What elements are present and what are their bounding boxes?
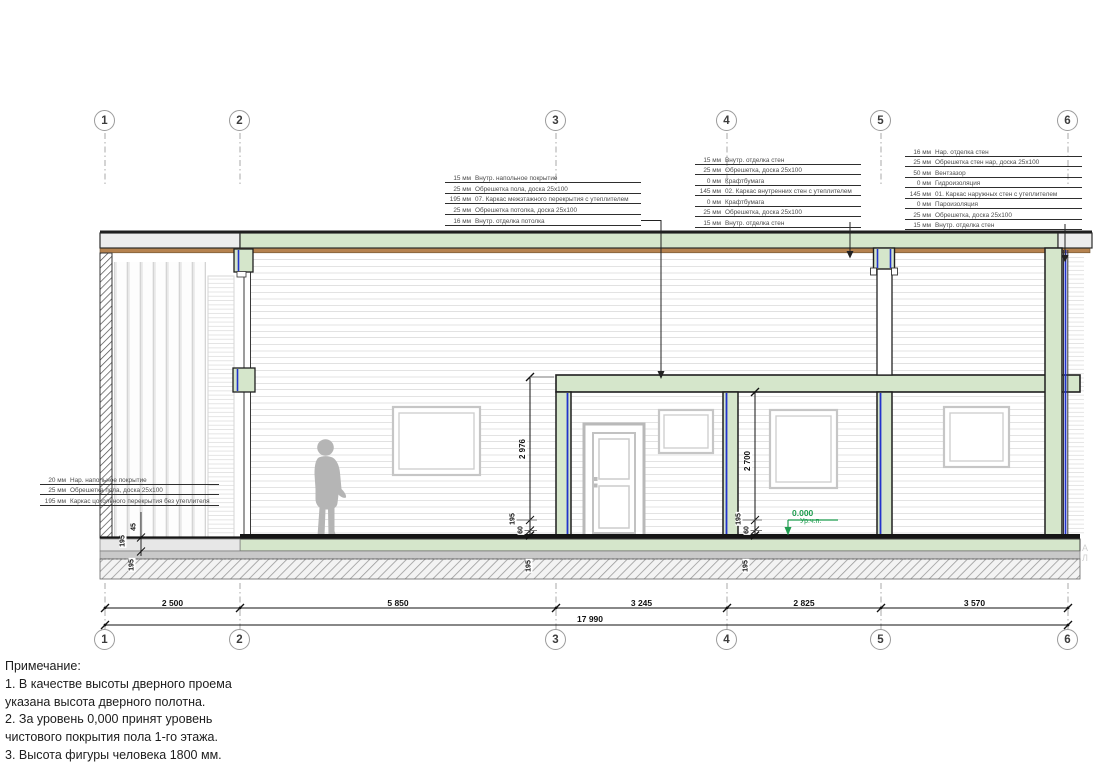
callout-row: 195 ммКаркас цокольного перекрытия без у…	[40, 495, 219, 506]
grid-bubble-top-3: 3	[545, 110, 566, 131]
layer-thickness: 145 мм	[905, 191, 935, 198]
dim-small: 60	[744, 525, 751, 535]
level-caption: Ур.ч.п.	[792, 518, 821, 526]
layer-thickness: 25 мм	[445, 207, 475, 214]
callout-row: 25 ммОбрешетка стен нар, доска 25x100	[905, 157, 1082, 168]
layer-description: 01. Каркас наружных стен с утеплителем	[935, 191, 1082, 198]
dim-segment-label: 2 825	[793, 598, 814, 608]
callout-row: 195 мм07. Каркас межэтажного перекрытия …	[445, 194, 641, 205]
callout-row: 25 ммОбрешетка пола, доска 25x100	[40, 485, 219, 496]
grid-bubble-bottom-2: 2	[229, 629, 250, 650]
callout-row: 0 ммКрафтбумага	[695, 196, 861, 207]
grid-bubble-top-6: 6	[1057, 110, 1078, 131]
dim-small: 195	[510, 512, 517, 526]
layer-description: Внутр. отделка стен	[725, 157, 861, 164]
layer-thickness: 15 мм	[905, 222, 935, 229]
layer-thickness: 16 мм	[905, 149, 935, 156]
layer-description: Обрешетка стен нар, доска 25x100	[935, 159, 1082, 166]
note-line: 1. В качестве высоты дверного проема	[5, 676, 285, 694]
layer-description: Обрешетка пола, доска 25x100	[475, 186, 641, 193]
note-line: указана высота дверного полотна.	[5, 694, 285, 712]
layer-thickness: 15 мм	[695, 157, 725, 164]
layer-thickness: 16 мм	[445, 218, 475, 225]
watermark-text: АЛ	[1080, 543, 1090, 563]
layer-description: Внутр. отделка стен	[725, 220, 861, 227]
dim-small: 195	[743, 559, 750, 573]
layer-thickness: 50 мм	[905, 170, 935, 177]
notes-lines: 1. В качестве высоты дверного проемауказ…	[5, 676, 285, 763]
dim-segment-label: 3 570	[964, 598, 985, 608]
grid-bubble-top-4: 4	[716, 110, 737, 131]
layer-description: Пароизоляция	[935, 201, 1082, 208]
callout-row: 50 ммВентзазор	[905, 167, 1082, 178]
layer-thickness: 195 мм	[40, 498, 70, 505]
layer-thickness: 195 мм	[445, 196, 475, 203]
callout-row: 25 ммОбрешетка, доска 25x100	[695, 165, 861, 176]
callout-row: 25 ммОбрешетка потолка, доска 25x100	[445, 204, 641, 215]
dim-segment-label: 5 850	[387, 598, 408, 608]
callout-row: 25 ммОбрешетка, доска 25x100	[695, 207, 861, 218]
callout-row: 15 ммВнутр. отделка стен	[905, 220, 1082, 231]
layer-thickness: 0 мм	[695, 178, 725, 185]
callout-row: 20 ммНар. напольное покрытие	[40, 474, 219, 485]
grid-bubble-top-1: 1	[94, 110, 115, 131]
layer-thickness: 0 мм	[695, 199, 725, 206]
notes-title: Примечание:	[5, 658, 285, 676]
dim-small: 195	[120, 534, 127, 548]
layer-thickness: 20 мм	[40, 477, 70, 484]
level-mark-label: 0.000 Ур.ч.п.	[792, 509, 821, 526]
layer-thickness: 25 мм	[905, 159, 935, 166]
dim-small: 195	[736, 512, 743, 526]
layer-thickness: 25 мм	[445, 186, 475, 193]
callout-row: 25 ммОбрешетка, доска 25x100	[905, 209, 1082, 220]
layer-thickness: 25 мм	[695, 209, 725, 216]
grid-bubble-bottom-6: 6	[1057, 629, 1078, 650]
callout-walls-internal: 15 ммВнутр. отделка стен25 ммОбрешетка, …	[695, 154, 861, 228]
dimension-dot	[1067, 624, 1070, 627]
callout-row: 0 ммГидроизоляция	[905, 178, 1082, 189]
layer-description: Обрешетка, доска 25x100	[725, 167, 861, 174]
layer-description: Каркас цокольного перекрытия без утеплит…	[70, 498, 219, 505]
note-line: 2. За уровень 0,000 принят уровень	[5, 711, 285, 729]
dimension-dot	[104, 624, 107, 627]
layer-thickness: 145 мм	[695, 188, 725, 195]
layer-description: Внутр. отделка потолка	[475, 218, 641, 225]
layer-description: Гидроизоляция	[935, 180, 1082, 187]
callout-walls-external: 16 ммНар. отделка стен25 ммОбрешетка сте…	[905, 146, 1082, 230]
level-value: 0.000	[792, 509, 821, 518]
layer-thickness: 0 мм	[905, 180, 935, 187]
grid-bubble-bottom-5: 5	[870, 629, 891, 650]
layer-description: Обрешетка, доска 25x100	[935, 212, 1082, 219]
layer-description: 07. Каркас межэтажного перекрытия с утеп…	[475, 196, 641, 203]
layer-thickness: 15 мм	[445, 175, 475, 182]
layer-description: Крафтбумага	[725, 178, 861, 185]
grid-bubble-top-2: 2	[229, 110, 250, 131]
callout-row: 25 ммОбрешетка пола, доска 25x100	[445, 183, 641, 194]
callout-row: 145 мм01. Каркас наружных стен с утеплит…	[905, 188, 1082, 199]
layer-description: Обрешетка пола, доска 25x100	[70, 487, 219, 494]
layer-thickness: 25 мм	[40, 487, 70, 494]
layer-description: Нар. отделка стен	[935, 149, 1082, 156]
callout-row: 15 ммВнутр. напольное покрытие	[445, 172, 641, 183]
layer-description: Крафтбумага	[725, 199, 861, 206]
grid-bubble-bottom-4: 4	[716, 629, 737, 650]
layer-description: Нар. напольное покрытие	[70, 477, 219, 484]
callout-row: 16 ммНар. отделка стен	[905, 146, 1082, 157]
dim-total-label: 17 990	[577, 614, 603, 624]
dim-room-height-right: 2 700	[744, 449, 752, 473]
layer-thickness: 25 мм	[695, 167, 725, 174]
layer-description: Обрешетка потолка, доска 25x100	[475, 207, 641, 214]
callout-row: 15 ммВнутр. отделка стен	[695, 154, 861, 165]
layer-thickness: 25 мм	[905, 212, 935, 219]
layer-description: 02. Каркас внутренних стен с утеплителем	[725, 188, 861, 195]
note-line: чистового покрытия пола 1-го этажа.	[5, 729, 285, 747]
grid-bubble-bottom-3: 3	[545, 629, 566, 650]
dim-room-height-left: 2 976	[519, 437, 527, 461]
callout-floor-ground: 20 ммНар. напольное покрытие25 ммОбрешет…	[40, 474, 219, 506]
dim-small: 195	[526, 559, 533, 573]
callout-row: 0 ммПароизоляция	[905, 199, 1082, 210]
layer-description: Обрешетка, доска 25x100	[725, 209, 861, 216]
layer-thickness: 15 мм	[695, 220, 725, 227]
layer-description: Вентзазор	[935, 170, 1082, 177]
dim-small: 195	[129, 558, 136, 572]
note-line: 3. Высота фигуры человека 1800 мм.	[5, 747, 285, 763]
layer-description: Внутр. напольное покрытие	[475, 175, 641, 182]
drawing-sheet: 15 ммВнутр. напольное покрытие25 ммОбреш…	[0, 0, 1114, 763]
callout-row: 0 ммКрафтбумага	[695, 175, 861, 186]
dim-segment-label: 3 245	[631, 598, 652, 608]
dim-small: 60	[518, 525, 525, 535]
callout-row: 16 ммВнутр. отделка потолка	[445, 215, 641, 226]
notes-block: Примечание: 1. В качестве высоты дверног…	[5, 658, 285, 763]
layer-description: Внутр. отделка стен	[935, 222, 1082, 229]
dim-small: 45	[131, 522, 138, 532]
callout-floor-interstorey: 15 ммВнутр. напольное покрытие25 ммОбреш…	[445, 172, 641, 226]
dim-segment-label: 2 500	[162, 598, 183, 608]
grid-bubble-top-5: 5	[870, 110, 891, 131]
callout-row: 145 мм02. Каркас внутренних стен с утепл…	[695, 186, 861, 197]
layer-thickness: 0 мм	[905, 201, 935, 208]
callout-row: 15 ммВнутр. отделка стен	[695, 217, 861, 228]
grid-bubble-bottom-1: 1	[94, 629, 115, 650]
